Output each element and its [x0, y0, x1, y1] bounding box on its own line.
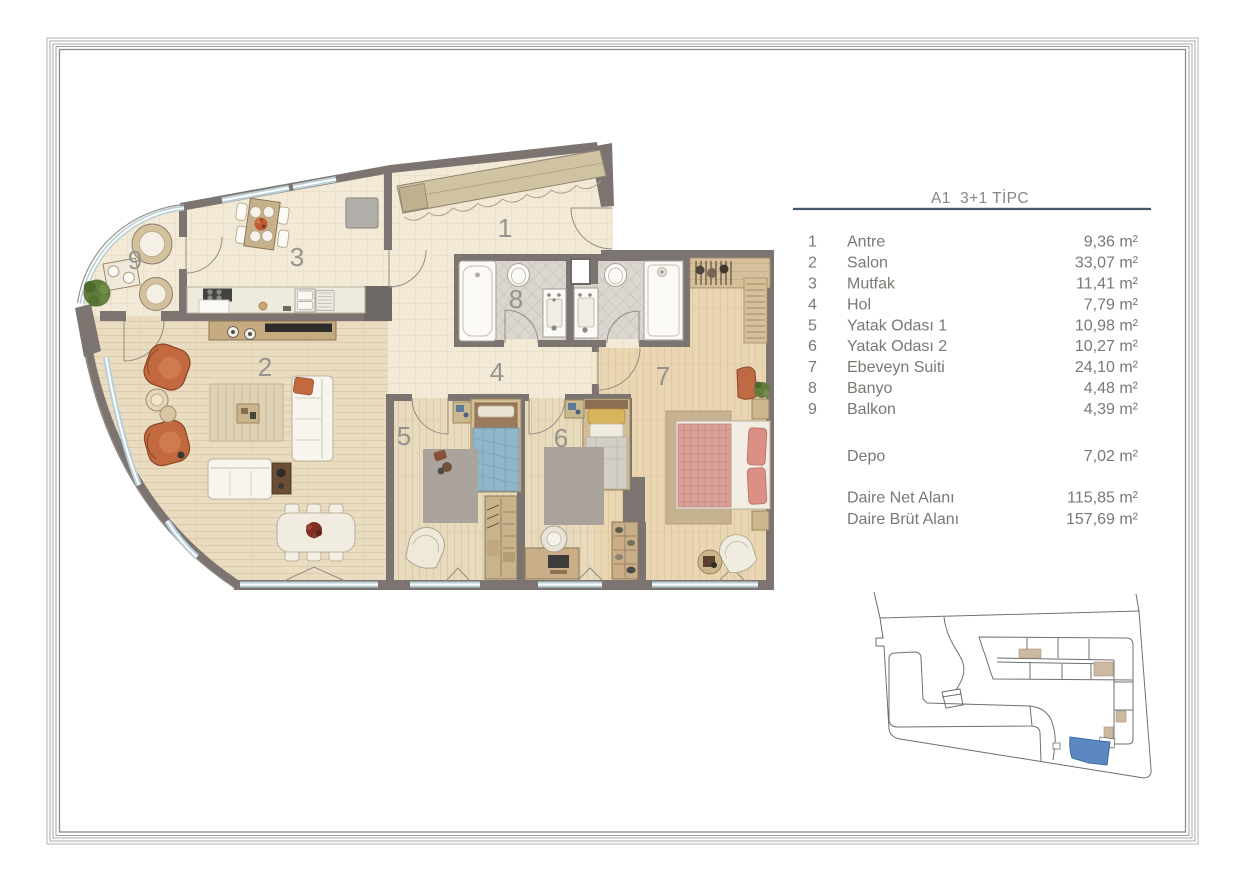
svg-text:33,07 m²: 33,07 m²: [1075, 255, 1139, 272]
svg-text:Mutfak: Mutfak: [847, 276, 896, 293]
svg-text:7,02 m²: 7,02 m²: [1084, 448, 1139, 465]
svg-text:6: 6: [808, 338, 817, 355]
svg-text:2: 2: [258, 352, 272, 382]
svg-text:3: 3: [290, 242, 304, 272]
svg-text:5: 5: [397, 421, 411, 451]
svg-text:10,27 m²: 10,27 m²: [1075, 338, 1139, 355]
svg-text:8: 8: [509, 284, 523, 314]
svg-text:6: 6: [554, 423, 568, 453]
svg-text:Hol: Hol: [847, 296, 871, 313]
svg-text:A1 3+1 TİPC: A1 3+1 TİPC: [931, 189, 1029, 207]
svg-text:4: 4: [808, 296, 817, 313]
svg-text:1: 1: [498, 213, 512, 243]
svg-text:Banyo: Banyo: [847, 380, 892, 397]
svg-text:9,36 m²: 9,36 m²: [1084, 234, 1139, 251]
svg-text:7: 7: [656, 361, 670, 391]
svg-text:3: 3: [808, 276, 817, 293]
svg-text:7,79 m²: 7,79 m²: [1084, 296, 1139, 313]
svg-text:Antre: Antre: [847, 234, 885, 251]
svg-text:4,39 m²: 4,39 m²: [1084, 401, 1139, 418]
svg-text:2: 2: [808, 255, 817, 272]
svg-text:9: 9: [128, 245, 142, 275]
svg-text:5: 5: [808, 317, 817, 334]
svg-text:7: 7: [808, 359, 817, 376]
svg-text:Depo: Depo: [847, 448, 885, 465]
svg-text:Yatak Odası 1: Yatak Odası 1: [847, 317, 947, 334]
svg-text:Ebeveyn Suiti: Ebeveyn Suiti: [847, 359, 945, 376]
svg-text:10,98 m²: 10,98 m²: [1075, 317, 1139, 334]
svg-text:Daire Net Alanı: Daire Net Alanı: [847, 490, 955, 507]
svg-text:24,10 m²: 24,10 m²: [1075, 359, 1139, 376]
svg-text:Daire Brüt Alanı: Daire Brüt Alanı: [847, 511, 959, 528]
svg-text:4,48 m²: 4,48 m²: [1084, 380, 1139, 397]
svg-text:4: 4: [490, 357, 504, 387]
svg-text:11,41 m²: 11,41 m²: [1076, 276, 1139, 293]
svg-text:Balkon: Balkon: [847, 401, 896, 418]
svg-text:9: 9: [808, 401, 817, 418]
svg-text:157,69 m²: 157,69 m²: [1066, 511, 1139, 528]
svg-text:Yatak Odası 2: Yatak Odası 2: [847, 338, 947, 355]
svg-text:Salon: Salon: [847, 255, 888, 272]
svg-text:115,85 m²: 115,85 m²: [1067, 490, 1139, 507]
svg-text:1: 1: [808, 234, 817, 251]
svg-text:8: 8: [808, 380, 817, 397]
